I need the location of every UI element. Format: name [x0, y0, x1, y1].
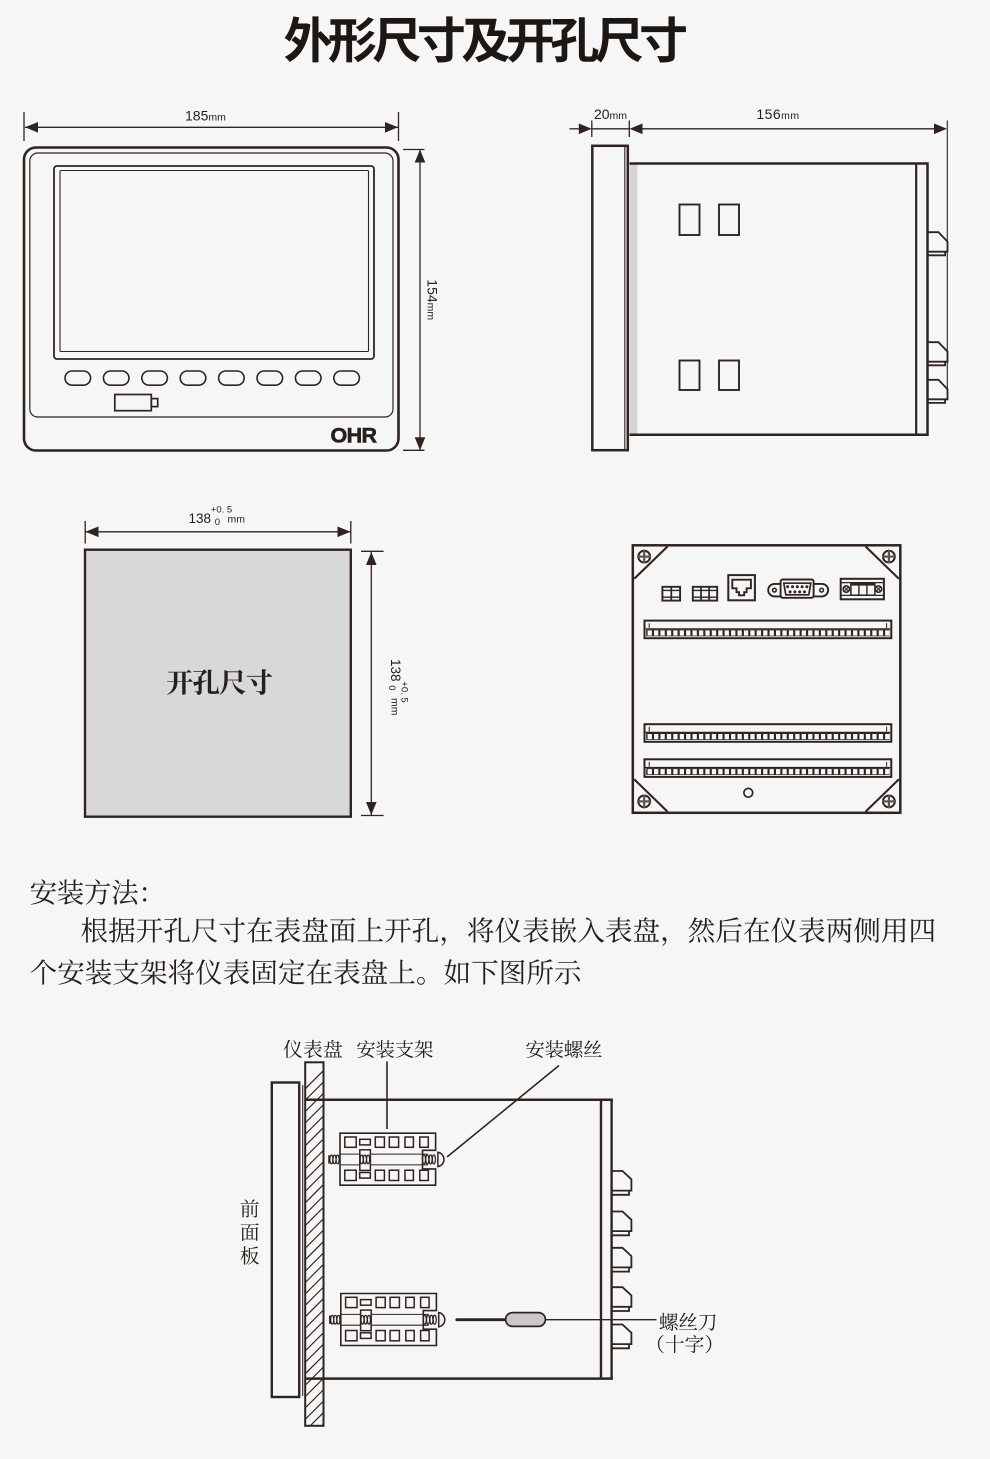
svg-text:0: 0 — [215, 517, 220, 528]
svg-text:OHR: OHR — [331, 424, 378, 448]
svg-text:0: 0 — [386, 685, 397, 690]
svg-text:mm: mm — [388, 698, 400, 716]
svg-text:mm: mm — [228, 514, 246, 526]
svg-text:138: 138 — [388, 659, 403, 682]
svg-text:138: 138 — [189, 511, 212, 526]
